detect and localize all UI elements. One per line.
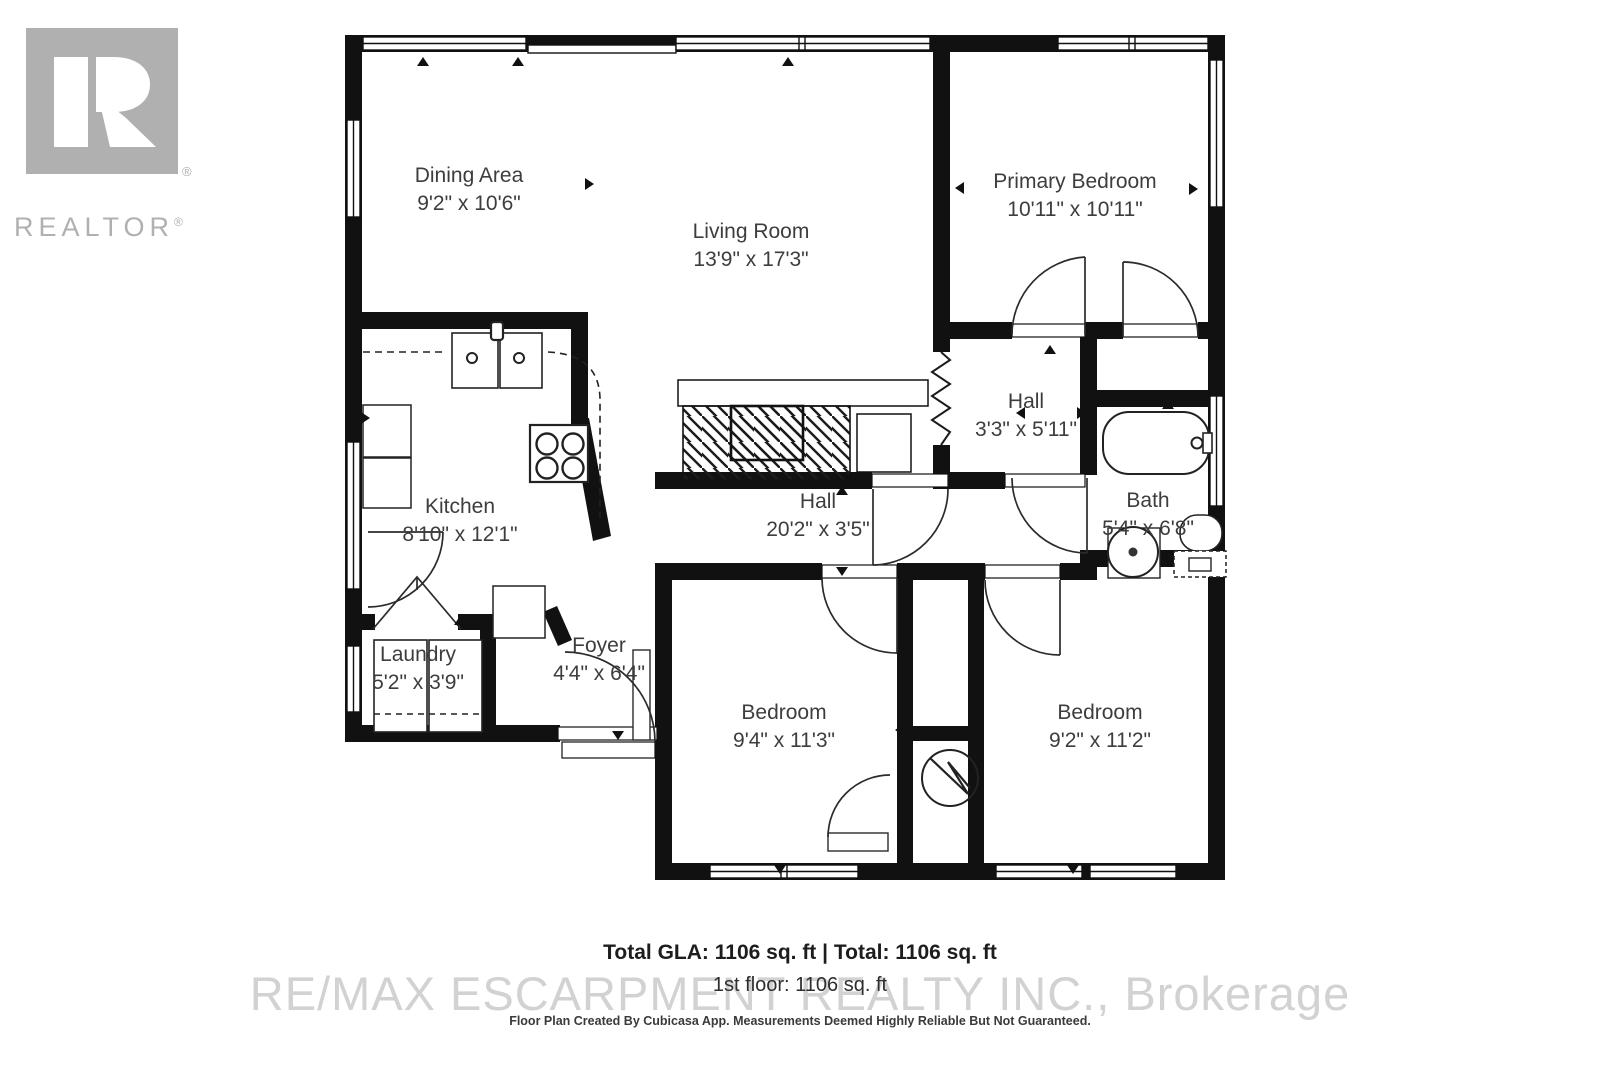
- threshold-hall-living: [872, 474, 948, 487]
- stove-burner-2: [563, 434, 584, 455]
- room-dims: 9'2" x 10'6": [415, 190, 524, 218]
- threshold-primary-closet: [1123, 324, 1198, 337]
- wall-hall-bottom-c: [1060, 563, 1085, 580]
- marker-up-icon: [512, 57, 524, 66]
- realtor-logo-r-stem: [54, 57, 88, 147]
- room-dims: 9'4" x 11'3": [733, 727, 835, 755]
- window-dining-top: [363, 37, 526, 50]
- door-hall-living: [873, 489, 948, 565]
- realtor-wordmark: REALTOR®: [14, 212, 204, 243]
- room-name: Hall: [766, 488, 870, 516]
- room-name: Dining Area: [415, 162, 524, 190]
- wall-primary-bottom-c: [1198, 322, 1225, 339]
- marker-right-icon: [1189, 183, 1198, 195]
- wall-closet-right: [968, 580, 984, 864]
- door-bedroom-right: [985, 580, 1060, 655]
- wall-hall-bottom-b: [897, 563, 985, 580]
- stove-burner-1: [537, 434, 558, 455]
- stove-burner-4: [563, 458, 584, 479]
- marker-up-icon: [1044, 345, 1056, 354]
- floor-plan-page: { "branding": { "logo_wordmark": "REALTO…: [0, 0, 1600, 1067]
- kitchen-faucet: [491, 322, 503, 340]
- wall-primary-west-upper: [933, 35, 950, 352]
- realtor-wordmark-registered: ®: [174, 215, 183, 229]
- room-label-foyer: Foyer 4'4" x 6'4": [553, 632, 645, 688]
- sink-drain-left: [467, 353, 477, 363]
- room-dims: 13'9" x 17'3": [693, 246, 810, 274]
- wall-hall-bottom-a: [655, 563, 822, 580]
- toilet-tank-lid: [1189, 558, 1211, 571]
- room-label-kitchen: Kitchen 8'10" x 12'1": [402, 493, 517, 549]
- room-dims: 4'4" x 6'4": [553, 660, 645, 688]
- room-name: Kitchen: [402, 493, 517, 521]
- room-label-hall-small: Hall 3'3" x 5'11": [975, 388, 1077, 444]
- wall-laundry-top-a: [361, 614, 375, 630]
- door-primary-entry: [1012, 257, 1085, 335]
- wall-hall-top-right: [948, 472, 1005, 489]
- bath-sink-drain: [1129, 548, 1138, 557]
- room-dims: 5'2" x 3'9": [372, 669, 464, 697]
- room-label-bedroom-left: Bedroom 9'4" x 11'3": [733, 699, 835, 755]
- sink-drain-right: [514, 353, 524, 363]
- realtor-logo: ® REALTOR®: [14, 24, 204, 243]
- fridge: [363, 405, 411, 457]
- stairs-area: [678, 380, 928, 480]
- room-label-bedroom-right: Bedroom 9'2" x 11'2": [1049, 699, 1151, 755]
- room-dims: 5'4" x 6'8": [1102, 515, 1194, 543]
- window-living-top: [676, 37, 930, 50]
- furnace-zigzag: [930, 758, 970, 794]
- total-area-text: Total GLA: 1106 sq. ft | Total: 1106 sq.…: [0, 941, 1600, 965]
- logo-registered-mark: ®: [182, 164, 192, 179]
- room-name: Bedroom: [733, 699, 835, 727]
- stairs-inner-hatched: [731, 406, 803, 460]
- wall-closet-divider: [897, 726, 984, 741]
- door-bedroom-left: [822, 578, 897, 653]
- wall-break-zigzag: [932, 352, 950, 445]
- wall-closet-left: [897, 580, 913, 864]
- room-label-hall-main: Hall 20'2" x 3'5": [766, 488, 870, 544]
- door-bedroom-left-closet: [828, 775, 890, 851]
- room-dims: 3'3" x 5'11": [975, 416, 1077, 444]
- realtor-wordmark-text: REALTOR: [14, 212, 174, 242]
- room-label-primary-bedroom: Primary Bedroom 10'11" x 10'11": [993, 168, 1156, 224]
- front-door-step: [562, 742, 655, 758]
- threshold-bath-hall: [1005, 474, 1085, 487]
- window-ledge-top: [528, 45, 676, 53]
- stove-burner-3: [537, 458, 558, 479]
- wall-primary-bottom-a: [950, 322, 1012, 339]
- door-bath: [1012, 478, 1087, 553]
- marker-up-icon: [417, 57, 429, 66]
- wall-kitchen-top: [345, 312, 588, 329]
- room-dims: 10'11" x 10'11": [993, 196, 1156, 224]
- room-name: Foyer: [553, 632, 645, 660]
- room-label-bath: Bath 5'4" x 6'8": [1102, 487, 1194, 543]
- window-bedroom-right-bottom-b: [1090, 865, 1176, 878]
- room-name: Hall: [975, 388, 1077, 416]
- room-name: Bath: [1102, 487, 1194, 515]
- wall-bedroom-left-west: [655, 563, 672, 880]
- first-floor-area-text: 1st floor: 1106 sq. ft: [0, 974, 1600, 997]
- room-dims: 20'2" x 3'5": [766, 516, 870, 544]
- threshold-bedroom-left: [822, 565, 897, 578]
- tub-faucet-plate: [1203, 433, 1212, 453]
- room-name: Living Room: [693, 218, 810, 246]
- room-dims: 8'10" x 12'1": [402, 521, 517, 549]
- window-primary-top: [1058, 37, 1208, 50]
- room-name: Laundry: [372, 641, 464, 669]
- disclaimer-text: Floor Plan Created By Cubicasa App. Meas…: [0, 1014, 1600, 1028]
- door-laundry-bifold: [373, 577, 461, 629]
- window-primary-right: [1210, 60, 1223, 207]
- wall-kitchen-right: [571, 312, 588, 424]
- kitchen-fixtures: [363, 322, 600, 518]
- room-label-laundry: Laundry 5'2" x 3'9": [372, 641, 464, 697]
- tub-faucet: [1192, 438, 1203, 449]
- room-name: Bedroom: [1049, 699, 1151, 727]
- marker-right-icon: [585, 178, 594, 190]
- threshold-bedroom-right: [985, 565, 1060, 578]
- marker-up-icon: [782, 57, 794, 66]
- room-label-living: Living Room 13'9" x 17'3": [693, 218, 810, 274]
- window-kitchen-left: [347, 442, 360, 589]
- realtor-logo-mark: ®: [14, 24, 204, 204]
- fireplace-box: [857, 414, 911, 472]
- foyer-cabinet: [493, 586, 545, 638]
- threshold-primary-entry: [1012, 324, 1085, 337]
- window-dining-left: [347, 120, 360, 217]
- stairs-railing: [678, 380, 928, 406]
- room-label-dining: Dining Area 9'2" x 10'6": [415, 162, 524, 218]
- room-name: Primary Bedroom: [993, 168, 1156, 196]
- window-laundry-left: [347, 646, 360, 712]
- room-dims: 9'2" x 11'2": [1049, 727, 1151, 755]
- wall-bath-top: [1080, 390, 1225, 407]
- marker-left-icon: [955, 182, 964, 194]
